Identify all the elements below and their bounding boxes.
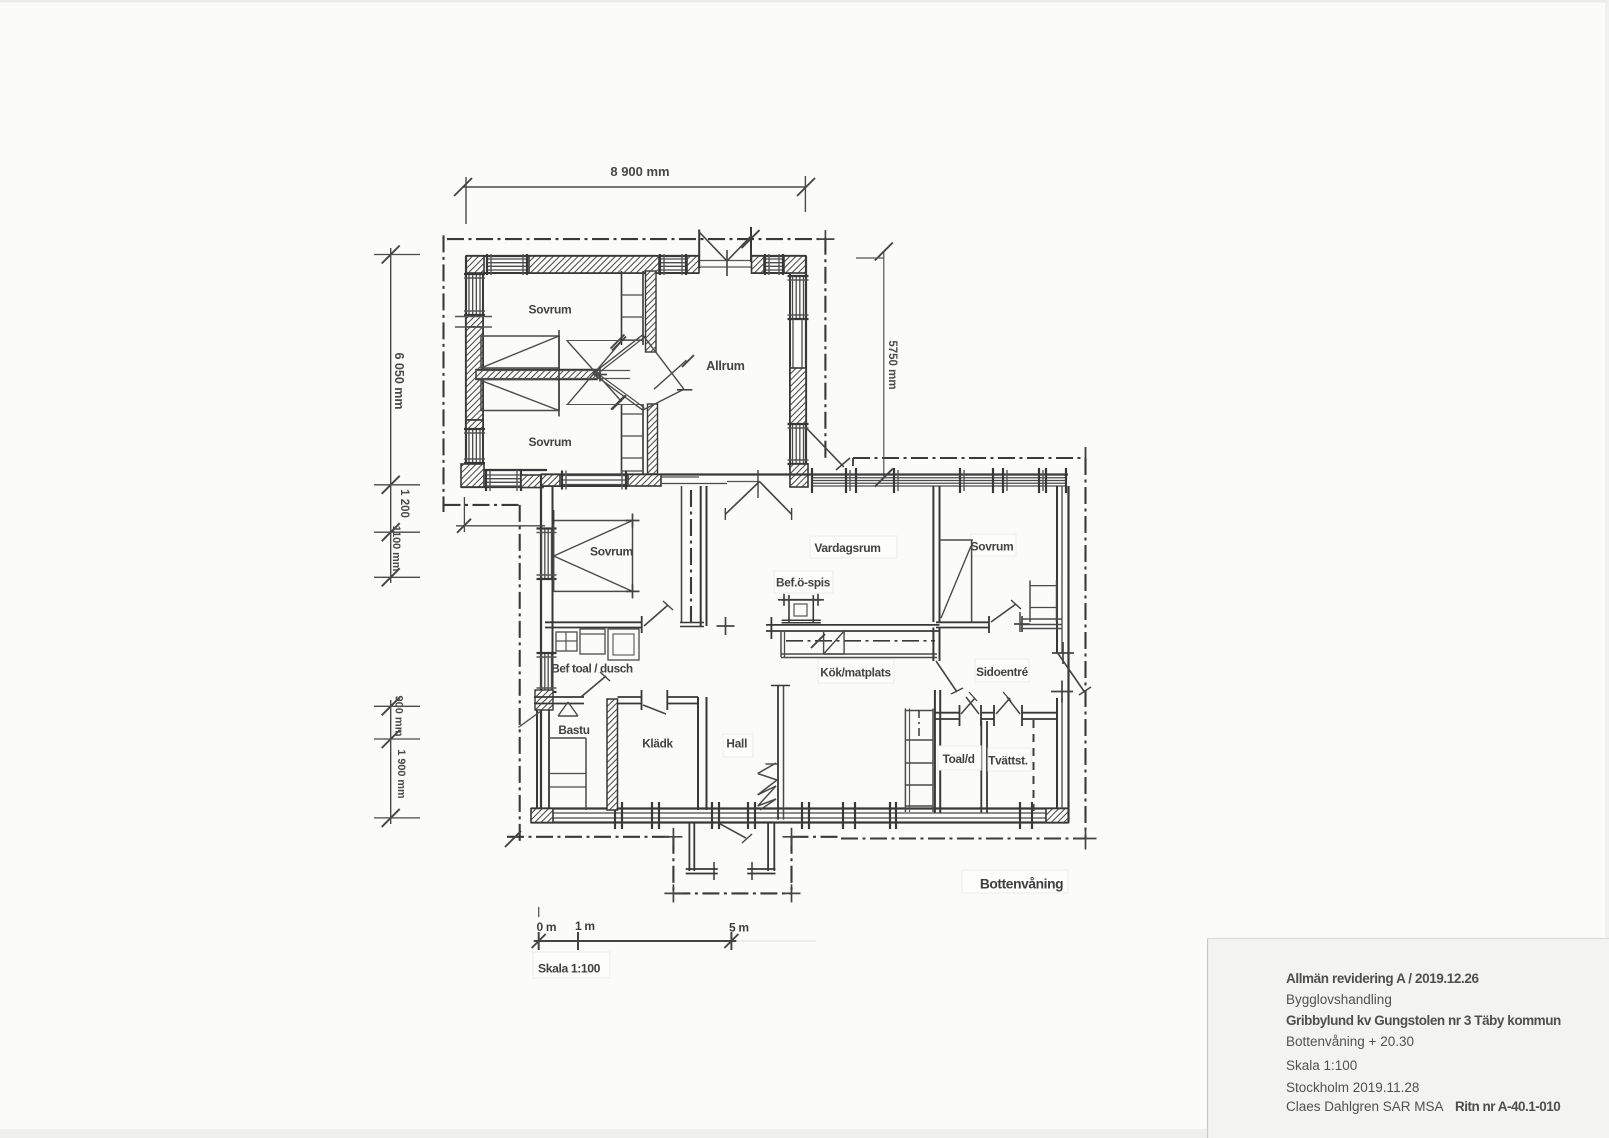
svg-text:Skala 1:100: Skala 1:100 — [1286, 1058, 1357, 1073]
svg-text:Allrum: Allrum — [706, 359, 744, 373]
svg-text:Claes Dahlgren SAR MSA: Claes Dahlgren SAR MSA — [1286, 1099, 1444, 1114]
svg-text:5 m: 5 m — [729, 921, 749, 935]
svg-text:Bef toal / dusch: Bef toal / dusch — [551, 661, 633, 675]
svg-text:6 050 mm: 6 050 mm — [392, 353, 406, 410]
svg-text:Klädk: Klädk — [642, 736, 673, 750]
svg-text:Tvättst.: Tvättst. — [988, 754, 1028, 768]
svg-text:1 m: 1 m — [575, 919, 595, 933]
svg-text:Bottenvåning + 20.30: Bottenvåning + 20.30 — [1286, 1034, 1414, 1049]
svg-text:Hall: Hall — [726, 736, 747, 750]
svg-text:Sovrum: Sovrum — [529, 303, 572, 317]
svg-text:5750 mm: 5750 mm — [886, 340, 898, 389]
svg-text:Toal/d: Toal/d — [943, 752, 975, 766]
svg-text:1 900 mm: 1 900 mm — [395, 749, 407, 798]
svg-text:900 mm: 900 mm — [393, 696, 405, 737]
svg-text:1100 mm: 1100 mm — [390, 526, 402, 572]
svg-text:Bygglovshandling: Bygglovshandling — [1286, 992, 1392, 1007]
svg-text:Sovrum: Sovrum — [971, 540, 1014, 554]
svg-text:Sovrum: Sovrum — [529, 435, 572, 449]
svg-text:0 m: 0 m — [537, 920, 557, 934]
svg-text:Sidoentré: Sidoentré — [976, 665, 1028, 679]
svg-text:Stockholm 2019.11.28: Stockholm 2019.11.28 — [1286, 1080, 1419, 1095]
svg-text:Bottenvåning: Bottenvåning — [980, 877, 1063, 892]
svg-text:Gribbylund kv Gungstolen nr 3: Gribbylund kv Gungstolen nr 3 Täby kommu… — [1286, 1013, 1561, 1028]
svg-text:8 900 mm: 8 900 mm — [610, 164, 669, 179]
svg-text:Ritn nr A-40.1-010: Ritn nr A-40.1-010 — [1455, 1099, 1560, 1114]
svg-text:Allmän revidering A / 2019.12: Allmän revidering A / 2019.12.26 — [1286, 971, 1479, 986]
svg-text:1 200: 1 200 — [398, 489, 410, 518]
svg-text:Sovrum: Sovrum — [590, 545, 633, 559]
svg-text:Kök/matplats: Kök/matplats — [820, 666, 891, 680]
svg-text:Skala 1:100: Skala 1:100 — [538, 962, 601, 976]
svg-text:Vardagsrum: Vardagsrum — [814, 541, 880, 555]
svg-text:Bef.ö-spis: Bef.ö-spis — [776, 576, 831, 590]
svg-text:Bastu: Bastu — [558, 723, 589, 737]
